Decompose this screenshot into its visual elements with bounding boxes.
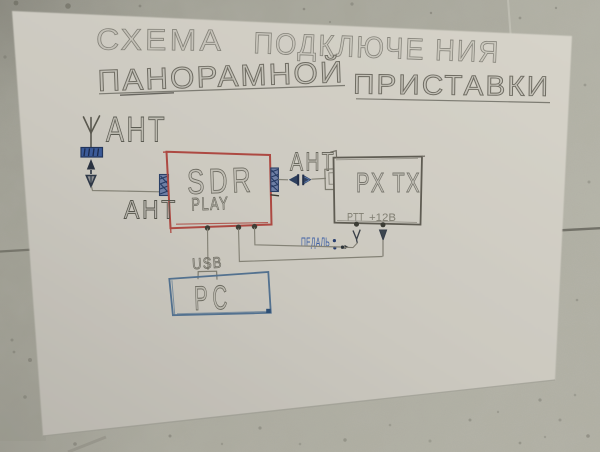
svg-text:USB: USB: [192, 254, 223, 273]
svg-text:АНТ: АНТ: [106, 111, 167, 150]
svg-text:СХЕМА: СХЕМА: [96, 24, 224, 58]
svg-text:PC: PC: [193, 279, 232, 318]
svg-text:PLAY: PLAY: [191, 193, 230, 214]
svg-text:ПЕДАЛЬ: ПЕДАЛЬ: [301, 236, 330, 250]
svg-text:+12В: +12В: [369, 212, 396, 224]
svg-text:АНТ: АНТ: [290, 147, 336, 177]
svg-text:PX TX: PX TX: [356, 167, 421, 198]
svg-text:PTT: PTT: [347, 212, 364, 224]
svg-text:АНТ: АНТ: [124, 195, 178, 225]
svg-text:ПРИСТАВКИ: ПРИСТАВКИ: [353, 69, 550, 102]
